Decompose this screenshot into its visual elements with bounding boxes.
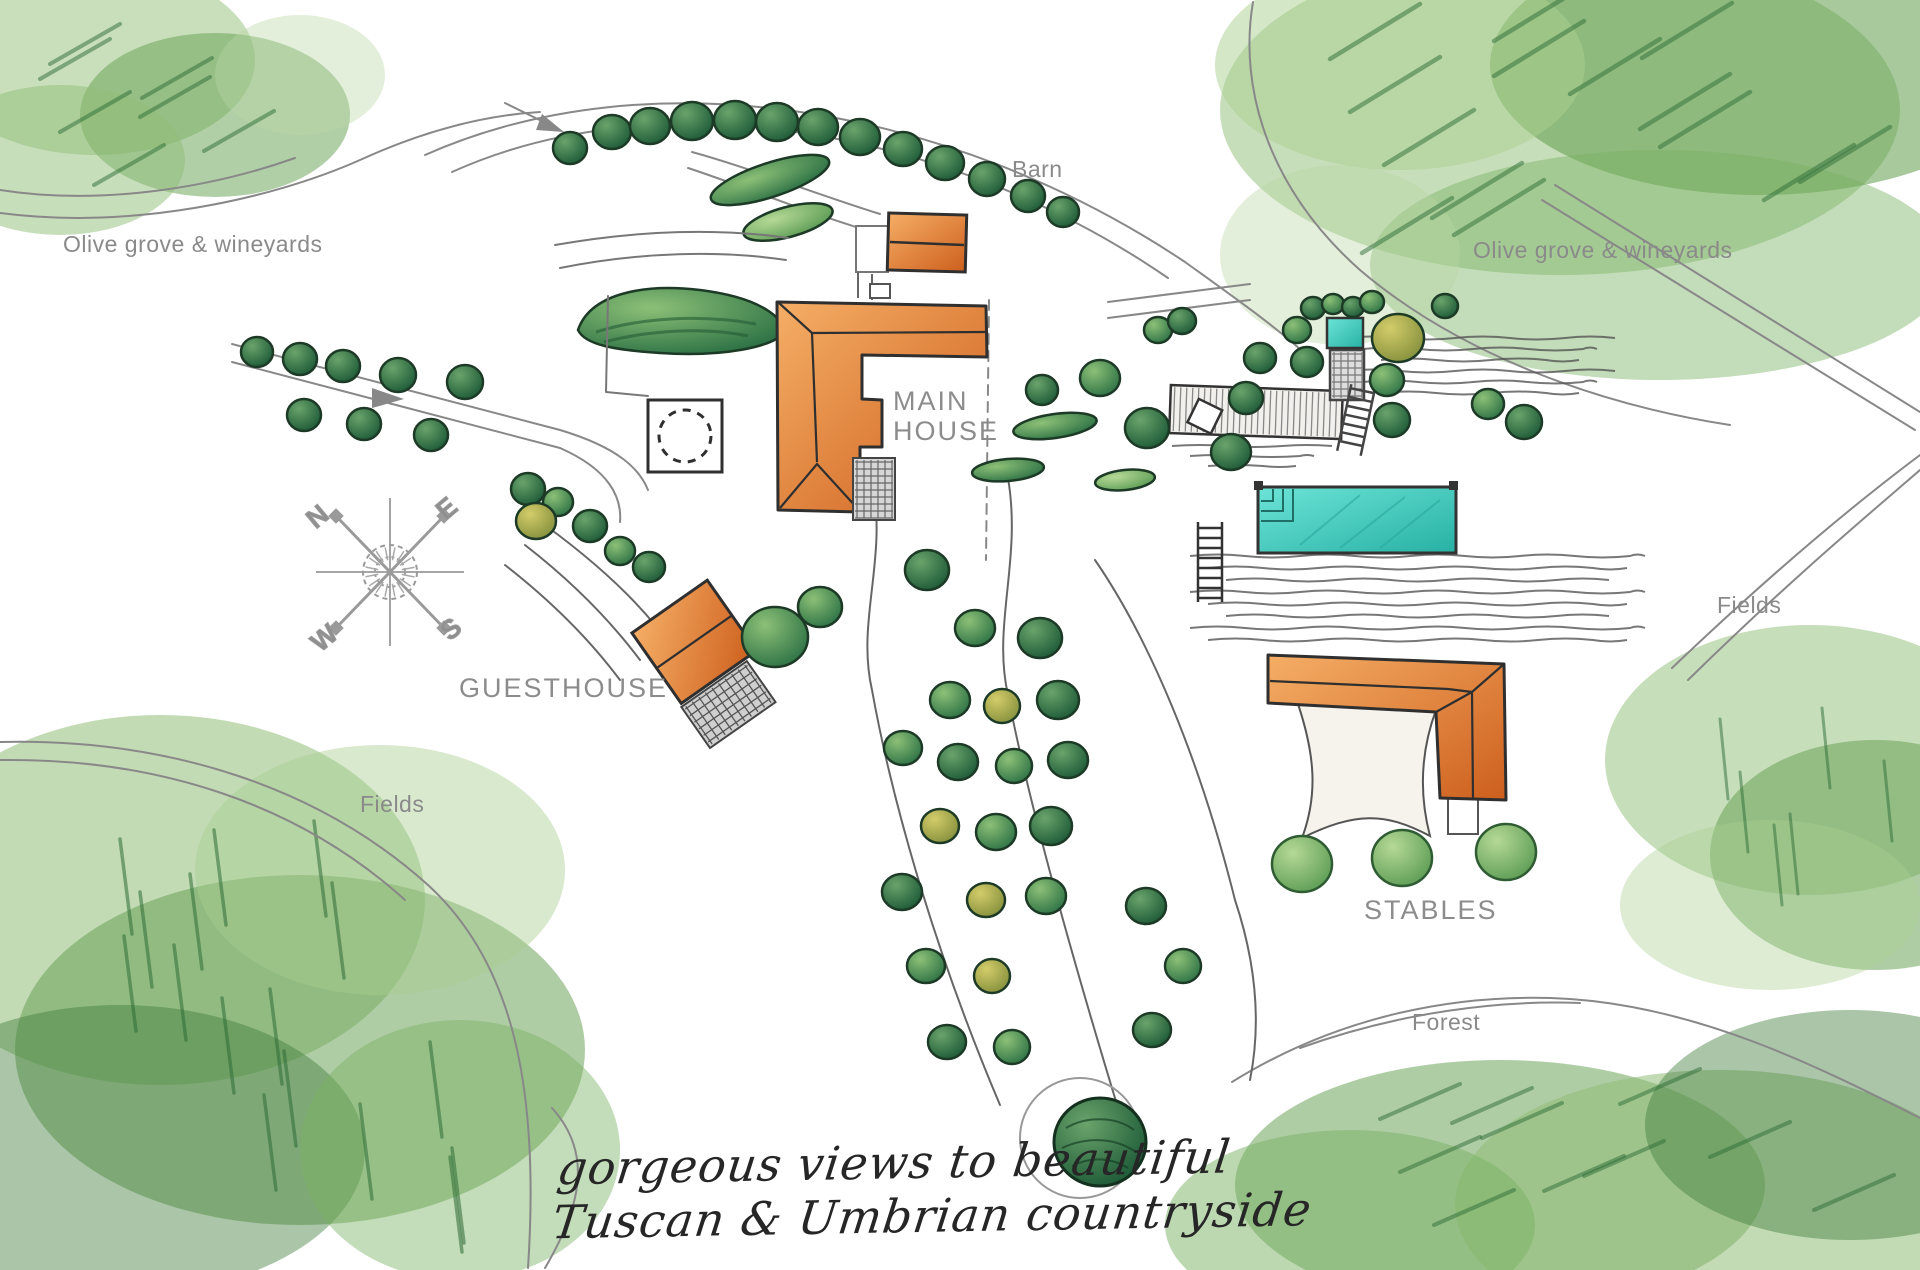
tree [1374, 403, 1410, 437]
tree [605, 537, 635, 565]
tree [884, 132, 922, 166]
tree [756, 103, 798, 141]
tree [671, 102, 713, 140]
tree [1080, 360, 1120, 396]
tree [928, 1025, 966, 1059]
tree [1047, 197, 1079, 227]
caption: gorgeous views to beautiful Tuscan & Umb… [547, 1128, 1315, 1249]
tree [516, 503, 556, 539]
tree [798, 109, 838, 145]
tree [1018, 618, 1062, 658]
tree [1165, 949, 1201, 983]
tree [882, 874, 922, 910]
tree [447, 365, 483, 399]
tree [1229, 382, 1263, 414]
tree [1126, 888, 1166, 924]
tree [984, 689, 1020, 723]
label-main-house-1: MAIN [893, 386, 969, 416]
tree [1370, 364, 1404, 396]
tree [1125, 408, 1169, 448]
tree [633, 552, 665, 582]
stables-canvas-court [1298, 704, 1436, 838]
tree [1283, 317, 1311, 343]
label-olive-grove-right: Olive grove & wineyards [1473, 237, 1733, 263]
tree [1322, 294, 1344, 314]
tree [974, 959, 1010, 993]
tree [593, 115, 631, 149]
tree [921, 809, 959, 843]
tree [1476, 824, 1536, 880]
label-guesthouse: GUESTHOUSE [459, 673, 668, 703]
tree [907, 949, 945, 983]
tree [1291, 347, 1323, 377]
tree [1037, 681, 1079, 719]
tree [798, 587, 842, 627]
tree [884, 731, 922, 765]
tree [553, 132, 587, 164]
label-stables: STABLES [1364, 895, 1498, 925]
label-olive-grove-left: Olive grove & wineyards [63, 231, 323, 257]
tree [1432, 294, 1458, 318]
tree [996, 749, 1032, 783]
swimming-pool [1198, 481, 1458, 602]
tree [1372, 314, 1424, 362]
tree [1372, 830, 1432, 886]
label-forest: Forest [1412, 1009, 1480, 1035]
tree [573, 510, 607, 542]
compass-e: E [430, 491, 463, 526]
tree [1026, 878, 1066, 914]
tree [347, 408, 381, 440]
tree [1244, 343, 1276, 373]
tree [1506, 405, 1542, 439]
tree [287, 399, 321, 431]
tree [511, 473, 545, 505]
tree [714, 101, 756, 139]
tree [930, 682, 970, 718]
plunge-pool [1327, 318, 1363, 348]
fountain-circle [659, 410, 711, 462]
tree [380, 358, 416, 392]
chimney [870, 284, 890, 298]
tree [994, 1030, 1030, 1064]
site-plan-page: N E S W Olive grove & wineyards Barn Oli… [0, 0, 1920, 1270]
tree [241, 337, 273, 367]
tree [938, 744, 978, 780]
tree [630, 108, 670, 144]
tree [926, 146, 964, 180]
tree [1168, 308, 1196, 334]
house-terrace [853, 458, 895, 520]
tree [1211, 434, 1251, 470]
compass-s: S [434, 612, 467, 647]
compass-rose: N E S W [300, 491, 467, 657]
label-fields-right: Fields [1717, 592, 1781, 618]
tree [969, 162, 1005, 196]
stables-building [1268, 655, 1506, 838]
tree [1026, 375, 1058, 405]
tree [1360, 291, 1384, 313]
label-fields-left: Fields [360, 791, 424, 817]
tree [1472, 389, 1504, 419]
tree [1048, 742, 1088, 778]
tree [1272, 836, 1332, 892]
tree [414, 419, 448, 451]
tree [905, 550, 949, 590]
tree [1030, 807, 1072, 845]
tree [967, 883, 1005, 917]
label-barn: Barn [1012, 156, 1063, 182]
tree [1011, 180, 1045, 212]
label-main-house-2: HOUSE [893, 416, 999, 446]
tree [742, 607, 808, 667]
tree [283, 343, 317, 375]
tree [1133, 1013, 1171, 1047]
compass-n: N [300, 499, 334, 535]
site-plan-illustration: N E S W Olive grove & wineyards Barn Oli… [0, 0, 1920, 1270]
tree [326, 350, 360, 382]
tree [976, 814, 1016, 850]
tree [840, 119, 880, 155]
tree [955, 610, 995, 646]
